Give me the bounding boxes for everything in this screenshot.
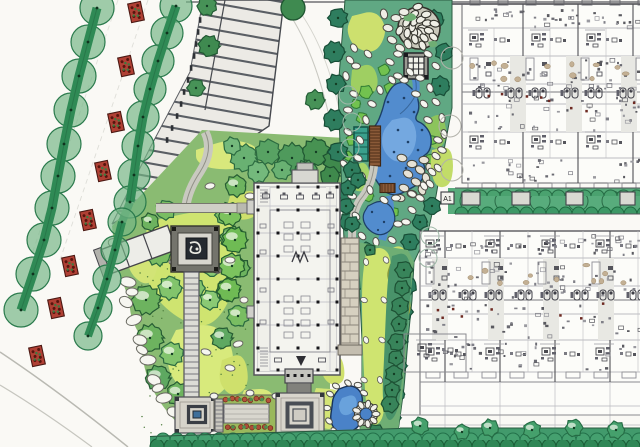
svg-text:A1: A1 <box>443 196 452 203</box>
